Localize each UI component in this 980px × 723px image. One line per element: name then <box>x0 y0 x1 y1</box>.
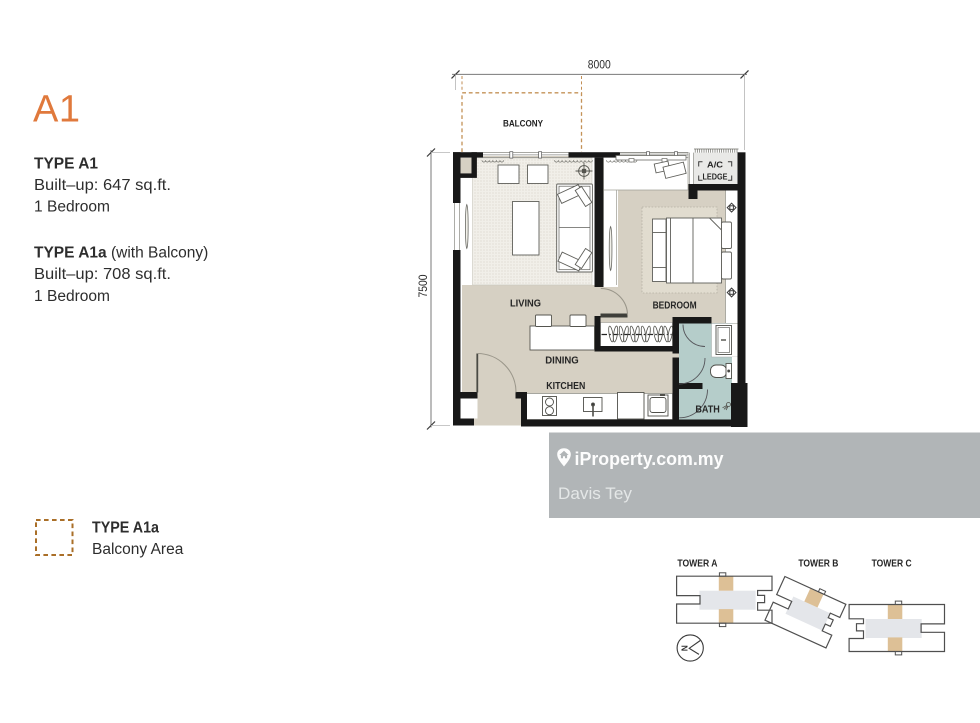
svg-text:Built–up: 647 sq.ft.: Built–up: 647 sq.ft. <box>34 177 171 194</box>
svg-text:TOWER B: TOWER B <box>798 559 838 570</box>
svg-text:TYPE A1a: TYPE A1a <box>92 520 159 537</box>
svg-text:N: N <box>679 645 689 651</box>
svg-text:LIVING: LIVING <box>510 298 541 309</box>
svg-text:BATH: BATH <box>695 405 720 416</box>
svg-text:7500: 7500 <box>418 275 430 298</box>
svg-text:iProperty.com.my: iProperty.com.my <box>575 449 724 469</box>
svg-text:A1: A1 <box>33 89 80 131</box>
svg-text:BEDROOM: BEDROOM <box>653 300 697 311</box>
svg-text:TYPE A1: TYPE A1 <box>34 156 98 173</box>
svg-text:BALCONY: BALCONY <box>503 118 543 128</box>
svg-text:Balcony Area: Balcony Area <box>92 541 184 558</box>
svg-text:Built–up: 708 sq.ft.: Built–up: 708 sq.ft. <box>34 266 171 283</box>
svg-text:Davis Tey: Davis Tey <box>558 485 633 503</box>
svg-text:DINING: DINING <box>545 355 579 366</box>
svg-text:1 Bedroom: 1 Bedroom <box>34 288 110 305</box>
svg-text:1 Bedroom: 1 Bedroom <box>34 199 110 216</box>
svg-text:8000: 8000 <box>588 60 611 72</box>
svg-text:TYPE A1a (with Balcony): TYPE A1a (with Balcony) <box>34 245 208 262</box>
svg-text:A/C: A/C <box>707 160 723 169</box>
svg-text:TOWER A: TOWER A <box>677 559 717 570</box>
svg-text:TOWER C: TOWER C <box>872 559 912 570</box>
svg-text:KITCHEN: KITCHEN <box>546 381 585 392</box>
svg-text:LEDGE: LEDGE <box>703 173 729 182</box>
